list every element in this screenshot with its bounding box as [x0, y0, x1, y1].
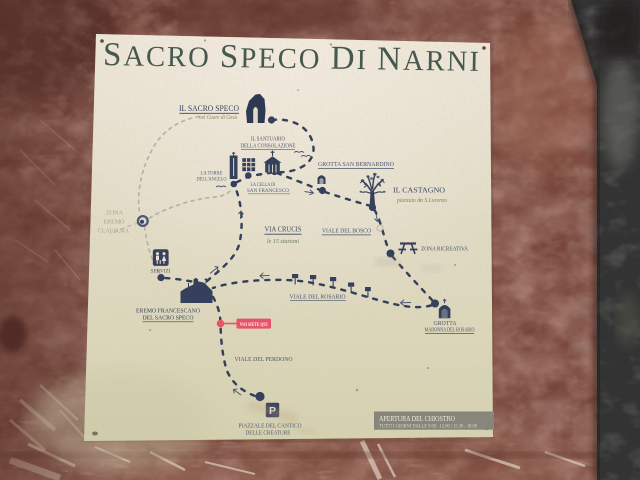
svg-text:IL SACRO SPECO: IL SACRO SPECO [179, 104, 239, 113]
svg-text:GROTTA: GROTTA [434, 321, 458, 327]
svg-text:VOI SIETE QUI: VOI SIETE QUI [240, 323, 268, 328]
svg-text:le 15 stazioni: le 15 stazioni [267, 238, 299, 245]
svg-text:ZONA: ZONA [106, 210, 123, 217]
svg-text:TUTTI I GIORNI DALLE 9.00 - 12: TUTTI I GIORNI DALLE 9.00 - 12.00 / 15.3… [379, 425, 477, 430]
svg-text:IL SANTUARIO: IL SANTUARIO [251, 137, 286, 143]
svg-text:VIALE DEL PERDONO: VIALE DEL PERDONO [235, 356, 293, 363]
svg-text:SERVIZI: SERVIZI [151, 269, 171, 274]
svg-text:IL CASTAGNO: IL CASTAGNO [393, 187, 445, 195]
svg-text:LA CELLA DI: LA CELLA DI [251, 183, 276, 188]
svg-text:VIA CRUCIS: VIA CRUCIS [265, 226, 302, 234]
svg-text:DEL SACRO SPECO: DEL SACRO SPECO [143, 315, 194, 322]
svg-text:MADONNA DEL ROSARIO: MADONNA DEL ROSARIO [425, 328, 475, 334]
svg-text:VIALE DEL BOSCO: VIALE DEL BOSCO [322, 228, 371, 235]
svg-text:DELLE CREATURE: DELLE CREATURE [246, 430, 291, 437]
svg-text:DELL'ANGELO: DELL'ANGELO [197, 177, 227, 183]
svg-text:piantato da S.Lorenzo: piantato da S.Lorenzo [396, 198, 447, 204]
svg-text:EREMO FRANCESCANO: EREMO FRANCESCANO [136, 308, 200, 315]
svg-text:EREMO: EREMO [104, 219, 125, 226]
svg-text:APERTURA DEL CHIOSTRO: APERTURA DEL CHIOSTRO [379, 415, 455, 423]
svg-text:DELLA CONSOLAZIONE: DELLA CONSOLAZIONE [241, 144, 296, 150]
svg-text:ZONA RICREATIVA: ZONA RICREATIVA [421, 247, 469, 253]
svg-text:CLAUSURA: CLAUSURA [98, 228, 129, 235]
svg-text:VIALE DEL ROSARIO: VIALE DEL ROSARIO [290, 294, 346, 301]
svg-text:nel Cuore di Gesù: nel Cuore di Gesù [199, 115, 237, 121]
svg-text:GROTTA SAN BERNARDINO: GROTTA SAN BERNARDINO [318, 161, 394, 168]
svg-text:SAN FRANCESCO: SAN FRANCESCO [247, 189, 289, 194]
